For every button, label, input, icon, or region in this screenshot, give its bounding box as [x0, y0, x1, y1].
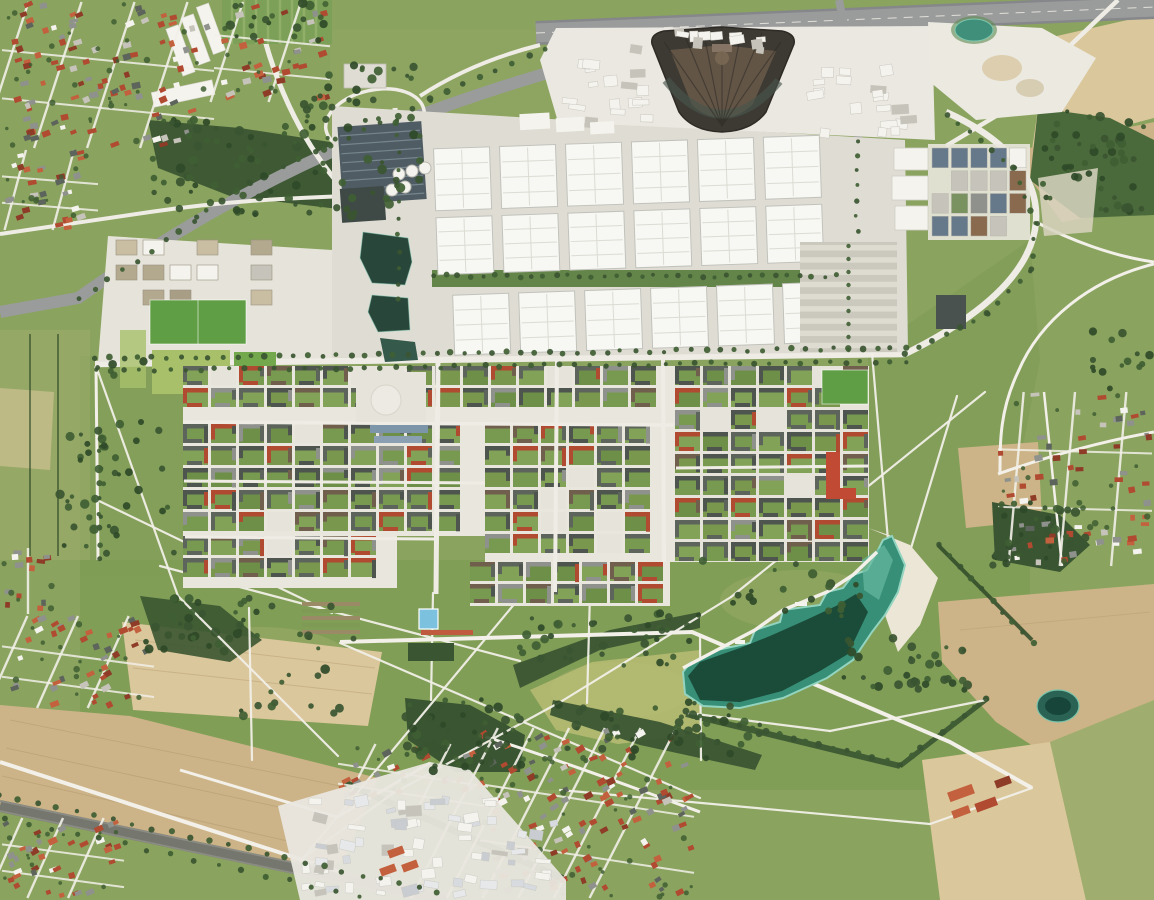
block-roof: [351, 446, 355, 458]
tree: [985, 311, 990, 316]
block-roof: [526, 562, 530, 577]
service-building: [900, 115, 917, 124]
tree: [415, 175, 423, 183]
house-roof: [29, 565, 35, 571]
block-roof: [379, 490, 383, 504]
tree: [588, 275, 593, 280]
tree: [815, 741, 822, 748]
storage-unit: [453, 878, 463, 887]
block-roof: [735, 403, 750, 407]
block-roof: [506, 514, 510, 529]
tree: [675, 273, 680, 278]
tree: [397, 168, 401, 172]
tree: [358, 895, 362, 899]
block-roof: [808, 412, 812, 423]
tree: [103, 550, 110, 557]
tree: [279, 680, 284, 685]
tree: [101, 442, 108, 449]
tree: [407, 702, 412, 707]
block-roof: [618, 426, 622, 442]
tree: [763, 728, 770, 735]
service-building: [877, 105, 891, 112]
tree: [572, 623, 576, 627]
tree: [509, 61, 515, 67]
tree: [116, 420, 125, 429]
tree: [1145, 351, 1154, 360]
block-roof: [707, 381, 722, 385]
block-roof: [724, 368, 728, 384]
tree: [767, 362, 771, 366]
tree: [1120, 363, 1124, 367]
tree: [184, 622, 193, 631]
garden-tree: [108, 97, 111, 100]
tree: [749, 597, 757, 605]
house-roof: [1019, 498, 1028, 504]
service-building: [891, 104, 909, 114]
tree: [303, 861, 308, 866]
tree: [512, 363, 516, 367]
tree: [719, 717, 728, 726]
house-roof: [1141, 522, 1149, 526]
tree: [853, 582, 859, 588]
block-roof: [597, 490, 601, 505]
tree: [825, 582, 833, 590]
tree: [258, 366, 263, 371]
tree: [333, 889, 338, 894]
tree: [605, 733, 613, 741]
block-roof: [204, 492, 208, 506]
garden-tree: [204, 137, 210, 143]
block-roof: [629, 549, 644, 553]
garden-tree: [681, 835, 687, 841]
block-roof: [232, 560, 236, 574]
tree: [164, 197, 171, 204]
tree: [304, 631, 313, 640]
block-roof: [696, 412, 700, 431]
tree: [75, 809, 79, 813]
tree: [377, 365, 383, 371]
tree: [993, 550, 1001, 558]
garden-tree: [125, 38, 129, 42]
block-roof: [791, 447, 806, 451]
tree: [531, 350, 537, 356]
tree: [110, 371, 117, 378]
tree: [361, 127, 366, 132]
garden-tree: [122, 2, 126, 6]
block-roof: [631, 564, 635, 575]
block-roof: [232, 390, 236, 400]
block-roof: [601, 483, 616, 487]
tree: [1131, 156, 1137, 162]
garden-tree: [62, 833, 65, 836]
tree: [190, 635, 196, 641]
tree: [843, 360, 849, 366]
tree: [968, 129, 972, 133]
block-roof: [243, 403, 258, 407]
block-roof: [752, 544, 756, 555]
tree: [287, 367, 292, 372]
block-roof: [836, 434, 840, 453]
block-roof: [211, 490, 215, 503]
block-roof: [864, 456, 868, 473]
tree: [609, 711, 614, 716]
residential-street: [663, 360, 664, 562]
tree: [409, 130, 418, 139]
tree: [692, 360, 698, 366]
garden-tree: [68, 31, 71, 34]
tree: [1068, 164, 1074, 170]
house-roof: [1115, 415, 1122, 421]
block-roof: [232, 470, 236, 487]
tree: [959, 677, 967, 685]
tree: [235, 126, 245, 136]
tree: [234, 162, 241, 169]
block-roof: [625, 468, 629, 482]
block-roof: [517, 505, 532, 509]
estate-roof: [932, 148, 948, 168]
block-roof: [573, 439, 588, 443]
tree: [1099, 368, 1107, 376]
tree: [751, 361, 757, 367]
tree: [282, 123, 289, 130]
block-roof: [590, 426, 594, 434]
block-roof: [625, 490, 629, 503]
block-roof: [707, 403, 722, 407]
tree: [603, 275, 607, 279]
garden-tree: [615, 734, 620, 739]
tree: [898, 762, 903, 767]
block-roof: [517, 527, 532, 531]
tree: [282, 131, 287, 136]
tree: [2, 816, 8, 822]
plaza-block: [597, 534, 622, 553]
tree: [130, 822, 134, 826]
block-roof: [428, 390, 432, 406]
tree: [673, 730, 679, 736]
plaza-circle: [371, 385, 401, 415]
block-roof: [590, 492, 594, 511]
tree: [818, 348, 823, 353]
tree: [889, 634, 898, 643]
tree: [565, 273, 569, 277]
commercial-roof: [556, 117, 585, 132]
tree: [485, 705, 494, 714]
block-roof: [586, 577, 601, 581]
tree: [793, 561, 799, 567]
tree: [265, 852, 270, 857]
tree: [802, 739, 809, 746]
tree: [133, 437, 140, 444]
tree: [184, 368, 188, 372]
tree: [217, 863, 221, 867]
block-roof: [787, 542, 791, 552]
block-roof: [260, 492, 264, 510]
block-roof: [519, 388, 523, 405]
tree: [303, 105, 311, 113]
garden-tree: [22, 200, 25, 203]
block-roof: [288, 390, 292, 401]
tree: [346, 136, 351, 141]
tree: [299, 129, 309, 139]
garden-tree: [511, 727, 516, 732]
tree: [320, 161, 325, 166]
tree: [1129, 183, 1136, 190]
tree: [903, 672, 910, 679]
tree: [194, 599, 201, 606]
tree: [1011, 501, 1017, 507]
block-roof: [512, 368, 516, 376]
tree: [315, 672, 322, 679]
garden-tree: [495, 788, 500, 793]
storage-unit: [355, 838, 364, 847]
tree: [599, 651, 604, 656]
block-roof: [484, 368, 488, 377]
residential-street: [555, 360, 557, 592]
tree: [185, 594, 194, 603]
garden-tree: [1025, 475, 1030, 480]
tree: [393, 364, 399, 370]
tree: [239, 192, 246, 199]
storage-unit: [421, 868, 435, 879]
tree: [894, 680, 903, 689]
block-roof: [843, 520, 847, 538]
tree: [547, 349, 553, 355]
tree: [246, 179, 252, 185]
tree: [929, 739, 933, 743]
block-roof: [485, 534, 489, 548]
tree: [138, 419, 144, 425]
tree: [352, 98, 360, 106]
tree: [651, 273, 655, 277]
block-roof: [239, 446, 243, 458]
tree: [803, 346, 809, 352]
tree: [313, 149, 318, 154]
block-roof: [696, 456, 700, 472]
tree: [1005, 539, 1012, 546]
block-roof: [183, 468, 187, 480]
tree: [461, 763, 469, 771]
tree: [255, 193, 263, 201]
tree: [956, 121, 961, 126]
tree: [350, 61, 358, 69]
tree: [1090, 143, 1096, 149]
house-roof: [1037, 435, 1046, 440]
block-roof: [703, 498, 707, 511]
block-roof: [316, 448, 320, 459]
tree: [407, 365, 413, 371]
tree: [237, 628, 242, 633]
tree: [300, 16, 306, 22]
block-roof: [675, 410, 679, 426]
garden-tree: [669, 786, 673, 790]
tree: [518, 350, 524, 356]
block-roof: [610, 584, 614, 600]
block-roof: [558, 599, 573, 603]
storage-unit: [326, 844, 338, 855]
block-roof: [428, 492, 432, 510]
tree: [542, 362, 547, 367]
block-roof: [679, 381, 694, 385]
block-roof: [243, 551, 258, 555]
tree: [99, 515, 103, 519]
tree: [421, 351, 426, 356]
garden-tree: [74, 674, 79, 679]
block-roof: [731, 498, 735, 512]
tree: [540, 635, 549, 644]
tree: [233, 188, 240, 195]
block-roof: [323, 558, 327, 573]
garden-tree: [7, 16, 11, 20]
tree: [291, 353, 296, 358]
block-roof: [407, 490, 411, 503]
estate-roof: [971, 216, 987, 236]
tree: [234, 34, 238, 38]
block-roof: [679, 447, 694, 451]
tree: [467, 363, 471, 367]
tree: [978, 138, 984, 144]
tree: [96, 835, 102, 841]
tree: [106, 354, 113, 361]
garden-tree: [225, 53, 230, 58]
block-roof: [295, 388, 320, 393]
red-building: [826, 452, 840, 494]
tree: [160, 645, 168, 653]
tree: [417, 885, 422, 890]
tree: [169, 614, 177, 622]
tree: [281, 854, 287, 860]
tree: [688, 274, 693, 279]
block-roof: [780, 434, 784, 446]
tree: [306, 210, 312, 216]
long-blue-roof: [374, 436, 422, 443]
tree: [210, 181, 218, 189]
block-roof: [299, 461, 314, 465]
block-roof: [407, 446, 411, 457]
tree: [155, 427, 162, 434]
house-roof: [1145, 434, 1152, 441]
block-roof: [787, 454, 791, 465]
garden-tree: [71, 213, 77, 219]
tree: [169, 120, 175, 126]
tree: [194, 356, 199, 361]
tree: [598, 745, 606, 753]
tree: [233, 206, 241, 214]
tree: [703, 755, 709, 761]
tree: [248, 134, 254, 140]
tree: [454, 272, 460, 278]
tree: [62, 543, 67, 548]
tree: [396, 282, 400, 286]
block-roof: [707, 469, 722, 473]
garden-tree: [95, 46, 100, 51]
tree: [333, 204, 340, 211]
garden-tree: [31, 626, 35, 630]
tree: [226, 842, 231, 847]
tree: [178, 621, 183, 626]
block-roof: [735, 535, 750, 539]
block-roof: [211, 558, 215, 569]
garden-tree: [1104, 525, 1109, 530]
tree: [633, 348, 638, 353]
block-roof: [506, 448, 510, 456]
tree: [554, 620, 563, 629]
tree: [405, 74, 409, 78]
block-roof: [625, 446, 629, 460]
sports-pitch-east: [822, 370, 868, 404]
garden-tree: [101, 885, 106, 890]
block-roof: [484, 390, 488, 405]
tree: [1064, 506, 1071, 513]
tree: [252, 15, 257, 20]
tree: [979, 586, 984, 591]
garden-tree: [627, 858, 633, 864]
block-roof: [847, 535, 862, 539]
plaza-block: [295, 424, 320, 443]
block-roof: [735, 557, 750, 561]
block-roof: [411, 527, 426, 531]
tree: [514, 713, 521, 720]
tree: [438, 704, 444, 710]
block-roof: [819, 557, 834, 561]
tree: [957, 564, 963, 570]
garden-tree: [580, 755, 586, 761]
tree: [287, 673, 291, 677]
tree: [1125, 118, 1134, 127]
block-roof: [183, 490, 187, 506]
city-block: [170, 265, 191, 280]
tree: [395, 232, 400, 237]
tree: [740, 718, 748, 726]
city-block: [251, 265, 272, 280]
block-roof: [575, 564, 579, 582]
tree: [295, 156, 301, 162]
block-roof: [271, 403, 286, 407]
tree: [656, 659, 664, 667]
block-roof: [819, 425, 834, 429]
garden-tree: [12, 10, 18, 16]
block-roof: [513, 424, 517, 438]
tree: [305, 114, 309, 118]
service-building: [710, 31, 723, 40]
tree: [679, 714, 684, 719]
storage-unit: [535, 859, 551, 864]
garden-tree: [181, 29, 187, 35]
city-block: [143, 265, 164, 280]
block-roof: [344, 368, 348, 382]
block-roof: [815, 476, 819, 490]
tree: [856, 139, 860, 143]
block-roof: [780, 544, 784, 555]
garden-tree: [73, 666, 80, 673]
tree: [328, 104, 335, 111]
tree: [1086, 170, 1093, 177]
tree: [164, 237, 169, 242]
tree: [281, 165, 286, 170]
block-roof: [299, 573, 314, 577]
tree: [89, 524, 99, 534]
tree: [191, 858, 197, 864]
estate-roof: [990, 194, 1006, 214]
garden-tree: [690, 885, 693, 888]
tree: [423, 364, 428, 369]
tree: [397, 266, 401, 270]
tree: [215, 640, 223, 648]
tree: [165, 505, 170, 510]
block-roof: [267, 446, 271, 463]
tree: [673, 347, 679, 353]
tree: [664, 362, 668, 366]
garden-tree: [76, 621, 82, 627]
